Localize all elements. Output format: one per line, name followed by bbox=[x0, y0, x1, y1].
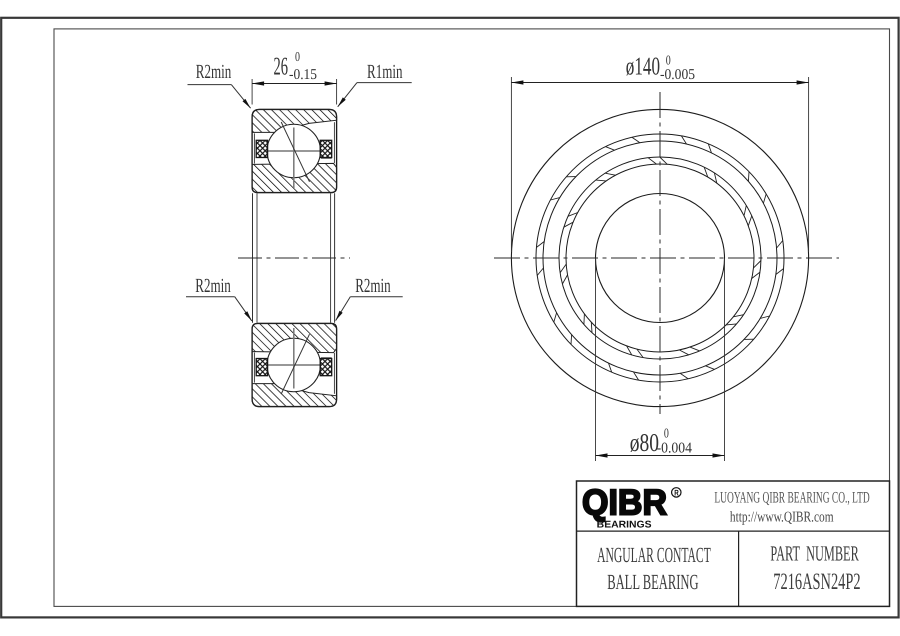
svg-text:BEARINGS: BEARINGS bbox=[597, 520, 652, 531]
svg-text:R2min: R2min bbox=[196, 61, 232, 83]
svg-text:ø80: ø80 bbox=[630, 428, 659, 457]
svg-text:QIBR: QIBR bbox=[582, 482, 667, 523]
svg-text:26: 26 bbox=[274, 52, 289, 81]
svg-text:R2min: R2min bbox=[355, 275, 391, 297]
svg-text:http://www.QIBR.com: http://www.QIBR.com bbox=[730, 510, 834, 526]
svg-text:0: 0 bbox=[666, 53, 671, 68]
svg-text:R: R bbox=[674, 488, 679, 497]
svg-text:-0.005: -0.005 bbox=[660, 67, 695, 83]
svg-text:-0.15: -0.15 bbox=[289, 67, 317, 83]
svg-text:7216ASN24P2: 7216ASN24P2 bbox=[773, 569, 860, 595]
svg-text:0: 0 bbox=[295, 49, 300, 64]
svg-text:0: 0 bbox=[664, 426, 669, 441]
svg-text:PART NUMBER: PART NUMBER bbox=[770, 541, 859, 565]
svg-text:R2min: R2min bbox=[195, 275, 231, 297]
svg-text:ANGULAR CONTACT: ANGULAR CONTACT bbox=[597, 543, 711, 567]
svg-text:R1min: R1min bbox=[367, 61, 403, 83]
svg-text:LUOYANG QIBR BEARING CO., LTD: LUOYANG QIBR BEARING CO., LTD bbox=[714, 490, 869, 507]
svg-text:ø140: ø140 bbox=[626, 52, 660, 81]
svg-text:BALL BEARING: BALL BEARING bbox=[607, 570, 698, 594]
svg-text:-0.004: -0.004 bbox=[657, 440, 693, 456]
